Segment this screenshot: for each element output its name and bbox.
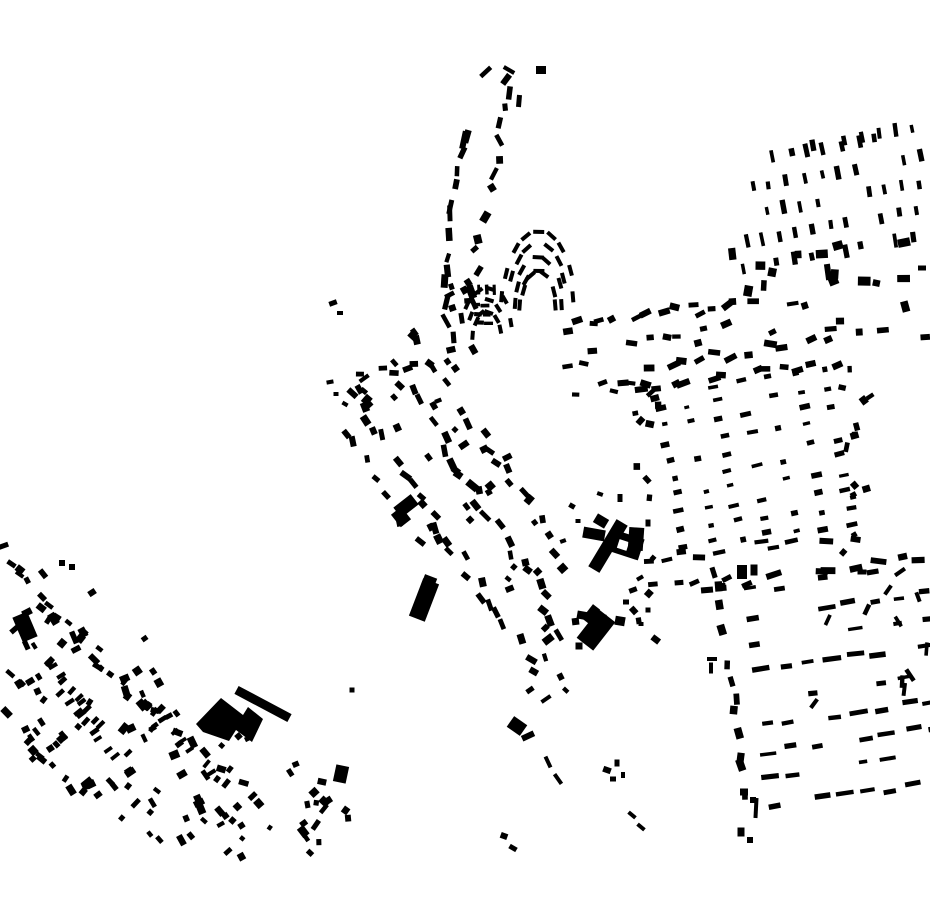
building [602, 766, 612, 774]
building [922, 699, 930, 706]
landmark-building [614, 616, 625, 627]
building [378, 429, 385, 441]
building [862, 604, 871, 616]
building [707, 657, 717, 661]
building [49, 761, 57, 769]
building [23, 576, 31, 584]
building [621, 772, 625, 778]
building [494, 134, 504, 147]
building [409, 384, 418, 395]
building [489, 167, 499, 181]
building [860, 787, 875, 793]
building [728, 503, 739, 509]
building [463, 417, 473, 430]
building [896, 207, 902, 217]
building [788, 148, 795, 157]
building [782, 174, 789, 186]
building [475, 320, 484, 324]
building [473, 234, 483, 245]
building [559, 538, 566, 544]
building [496, 117, 503, 129]
building [760, 751, 777, 756]
building [186, 831, 195, 840]
building [743, 285, 753, 297]
building [536, 66, 546, 74]
building [71, 645, 82, 654]
building [799, 403, 811, 411]
building [877, 730, 895, 737]
building [557, 242, 566, 254]
building [452, 179, 460, 190]
building [793, 528, 800, 533]
building [636, 823, 645, 832]
building [646, 334, 654, 340]
building [741, 264, 746, 275]
building [35, 673, 43, 681]
building [720, 433, 729, 439]
building [451, 426, 458, 433]
building [715, 599, 724, 610]
building [218, 742, 225, 749]
building [784, 537, 798, 544]
building [875, 707, 889, 715]
building [121, 685, 131, 699]
building [140, 733, 147, 742]
building [155, 835, 164, 844]
building [700, 325, 708, 331]
building [37, 717, 46, 727]
building [749, 641, 761, 648]
building [899, 180, 904, 191]
building [714, 415, 723, 422]
building [775, 344, 788, 352]
building [879, 755, 896, 762]
building [850, 481, 859, 491]
building [618, 494, 623, 502]
building [812, 743, 823, 750]
building [479, 510, 492, 523]
building [831, 360, 843, 370]
building [760, 515, 769, 521]
building [513, 298, 518, 309]
building [441, 444, 449, 457]
building [676, 526, 685, 534]
building [720, 319, 732, 330]
building [493, 285, 496, 295]
building [801, 659, 813, 665]
building [549, 548, 560, 560]
building [503, 463, 512, 474]
building [202, 759, 211, 768]
building [596, 491, 603, 497]
building [531, 519, 539, 527]
building [176, 834, 187, 846]
building [292, 760, 300, 768]
building [716, 624, 727, 636]
building [897, 275, 910, 282]
building [740, 789, 748, 796]
building [467, 311, 474, 321]
building [37, 592, 47, 602]
building [688, 302, 698, 308]
building [722, 451, 732, 458]
building [769, 150, 775, 163]
building [500, 832, 509, 840]
building [508, 844, 517, 852]
building [721, 574, 732, 583]
building [883, 584, 893, 595]
building [562, 686, 569, 693]
building [850, 536, 861, 543]
landmark-building [196, 698, 263, 742]
building [802, 173, 808, 184]
building [521, 244, 532, 254]
building [445, 228, 452, 241]
building [762, 720, 773, 726]
building [764, 373, 772, 379]
building [64, 698, 75, 707]
building [124, 749, 133, 758]
building [132, 665, 143, 676]
building [811, 471, 823, 479]
building [814, 489, 823, 496]
building [912, 557, 925, 564]
building [62, 774, 70, 782]
building [780, 459, 787, 465]
building [617, 379, 629, 386]
building [554, 628, 564, 641]
building [517, 299, 522, 310]
building [639, 308, 652, 319]
building [814, 792, 830, 800]
building [847, 366, 852, 373]
building [528, 666, 539, 676]
building [304, 801, 310, 809]
building [579, 360, 589, 367]
building [69, 564, 75, 570]
building [514, 281, 521, 293]
building [821, 567, 836, 574]
building [792, 227, 798, 239]
building [626, 340, 638, 347]
building [172, 728, 184, 737]
building [842, 217, 849, 228]
building [93, 735, 102, 743]
building [491, 458, 502, 468]
building [785, 772, 799, 778]
building [237, 852, 247, 862]
building [736, 377, 746, 384]
building [308, 787, 319, 798]
building [761, 280, 767, 291]
building [345, 815, 351, 822]
building [475, 486, 483, 495]
building [32, 727, 41, 736]
building [724, 353, 738, 364]
building [551, 286, 558, 298]
building [809, 698, 819, 709]
building [824, 264, 832, 281]
building [676, 548, 686, 555]
building [906, 724, 922, 732]
building [485, 285, 489, 295]
building [462, 502, 470, 511]
landmark-building [593, 513, 609, 528]
building [553, 773, 563, 785]
building [213, 775, 221, 783]
building [223, 847, 232, 856]
building [733, 516, 742, 522]
building [751, 565, 758, 576]
building [784, 742, 797, 749]
building [505, 535, 515, 548]
building [483, 312, 491, 316]
building [870, 598, 880, 604]
building [806, 439, 814, 446]
building [31, 642, 38, 650]
building [684, 405, 690, 409]
building [747, 837, 753, 843]
building [311, 819, 321, 831]
building [822, 366, 828, 372]
building [834, 166, 842, 181]
building [754, 539, 768, 545]
building [859, 759, 868, 764]
building [545, 530, 554, 539]
building [856, 328, 863, 335]
building [819, 510, 825, 516]
building [871, 133, 877, 142]
building [901, 155, 906, 166]
building [716, 372, 726, 379]
building [221, 778, 231, 789]
building [187, 736, 198, 749]
building [455, 166, 460, 176]
building [350, 688, 355, 693]
building [228, 816, 237, 825]
building [881, 184, 887, 194]
building [555, 255, 564, 267]
building [6, 559, 16, 568]
building [839, 487, 850, 494]
building [894, 567, 906, 577]
building [424, 453, 433, 462]
building [390, 358, 399, 367]
building [470, 245, 479, 254]
building [757, 497, 767, 503]
building [876, 680, 886, 686]
building [798, 390, 805, 395]
building [859, 736, 873, 743]
building [541, 589, 552, 600]
building [469, 499, 481, 512]
building [849, 708, 868, 716]
building [95, 645, 103, 653]
building [832, 240, 844, 251]
building [747, 429, 759, 435]
building [674, 580, 683, 586]
building [900, 300, 910, 312]
building [369, 426, 378, 436]
building [568, 502, 576, 509]
building [506, 86, 513, 100]
building [819, 538, 833, 545]
building [539, 515, 546, 524]
building [902, 698, 918, 705]
building [557, 562, 569, 574]
building [570, 291, 575, 302]
building [801, 301, 809, 310]
building [484, 297, 494, 303]
building [464, 298, 474, 304]
building [473, 265, 483, 277]
building [200, 817, 208, 825]
building [824, 614, 832, 626]
building [505, 584, 515, 592]
building [475, 592, 486, 604]
building [141, 635, 149, 643]
building [29, 755, 37, 763]
building [451, 364, 460, 373]
building [759, 232, 765, 246]
building [153, 677, 164, 688]
building [797, 201, 803, 213]
building [728, 248, 737, 261]
building [139, 690, 146, 698]
building [458, 439, 470, 450]
building [493, 314, 501, 324]
building [847, 650, 865, 657]
building [110, 752, 120, 761]
building [429, 416, 439, 427]
building [409, 361, 418, 367]
building [713, 397, 723, 402]
building [57, 638, 68, 649]
building [470, 331, 475, 340]
building [722, 468, 731, 474]
building [456, 406, 466, 416]
building [737, 565, 747, 579]
building [822, 655, 841, 663]
building [33, 687, 41, 695]
building [709, 567, 717, 579]
building [466, 515, 475, 524]
building [708, 385, 718, 390]
building [761, 529, 771, 536]
building [317, 778, 327, 786]
building [415, 393, 424, 405]
building [239, 835, 246, 841]
building [444, 253, 451, 263]
building [536, 578, 546, 590]
building [5, 669, 15, 679]
building [916, 180, 922, 189]
building [559, 299, 564, 310]
building [390, 393, 398, 401]
building [104, 746, 113, 754]
building [644, 364, 655, 371]
building [349, 436, 357, 447]
building [496, 156, 503, 164]
building [774, 586, 785, 592]
building [701, 586, 713, 593]
building [858, 277, 871, 286]
building [747, 298, 759, 304]
building [819, 142, 826, 155]
building [542, 633, 555, 646]
building [853, 422, 860, 431]
landmark-building [576, 643, 583, 650]
building [779, 199, 787, 214]
building [740, 411, 752, 418]
building [768, 328, 777, 336]
building [500, 73, 512, 86]
building [38, 568, 48, 579]
building [571, 316, 583, 326]
building [0, 542, 9, 550]
building [176, 769, 188, 780]
building [872, 279, 880, 287]
building [567, 265, 574, 277]
building [498, 618, 506, 630]
building [628, 586, 637, 593]
building [828, 715, 841, 721]
building [55, 688, 65, 698]
building [673, 489, 682, 496]
building [480, 427, 491, 438]
building [695, 310, 706, 319]
building [767, 545, 779, 551]
building [546, 231, 557, 241]
building [765, 207, 770, 215]
building [182, 814, 190, 822]
building [487, 183, 497, 193]
building [661, 557, 672, 564]
building [448, 304, 456, 312]
building [852, 164, 859, 176]
building [543, 243, 554, 253]
building [883, 788, 896, 795]
building [782, 476, 790, 481]
building [148, 797, 157, 808]
building [781, 719, 793, 725]
building [216, 764, 227, 773]
building [672, 334, 681, 338]
building [447, 205, 452, 221]
building [744, 351, 753, 358]
building [666, 457, 675, 464]
building [917, 149, 925, 162]
landmark-building [628, 527, 645, 551]
building [326, 379, 334, 384]
building [768, 802, 781, 810]
building [479, 66, 492, 79]
building [542, 653, 548, 662]
building [767, 267, 777, 277]
building [897, 237, 911, 248]
building [825, 326, 837, 332]
building [461, 550, 470, 561]
building [525, 654, 538, 665]
building [846, 521, 858, 528]
building [645, 420, 655, 428]
building [644, 588, 654, 598]
building [857, 241, 864, 250]
building [328, 299, 337, 306]
building [869, 651, 886, 659]
building [525, 686, 534, 695]
building [791, 510, 799, 517]
